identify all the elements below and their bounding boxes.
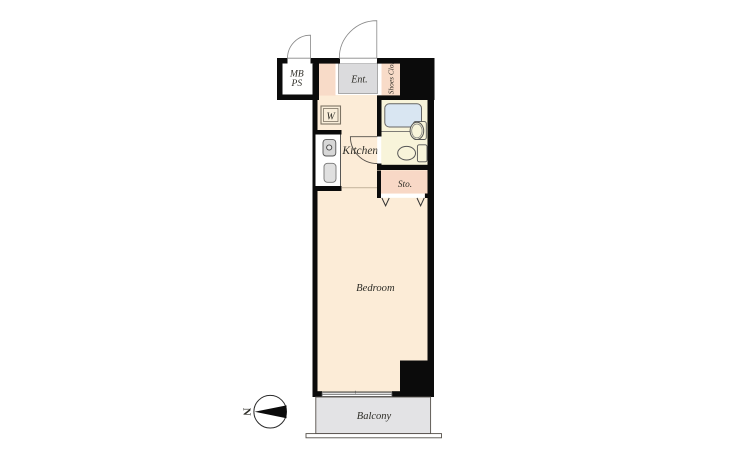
- svg-text:Sto.: Sto.: [398, 180, 412, 190]
- svg-text:Bedroom: Bedroom: [356, 283, 395, 294]
- svg-text:N: N: [241, 408, 253, 416]
- svg-text:Balcony: Balcony: [357, 411, 392, 422]
- svg-text:Shoes Clo.: Shoes Clo.: [386, 62, 395, 94]
- svg-text:MB: MB: [289, 69, 304, 79]
- svg-text:Kitchen: Kitchen: [341, 145, 378, 157]
- svg-text:PS: PS: [291, 79, 303, 89]
- svg-text:Ent.: Ent.: [350, 74, 367, 85]
